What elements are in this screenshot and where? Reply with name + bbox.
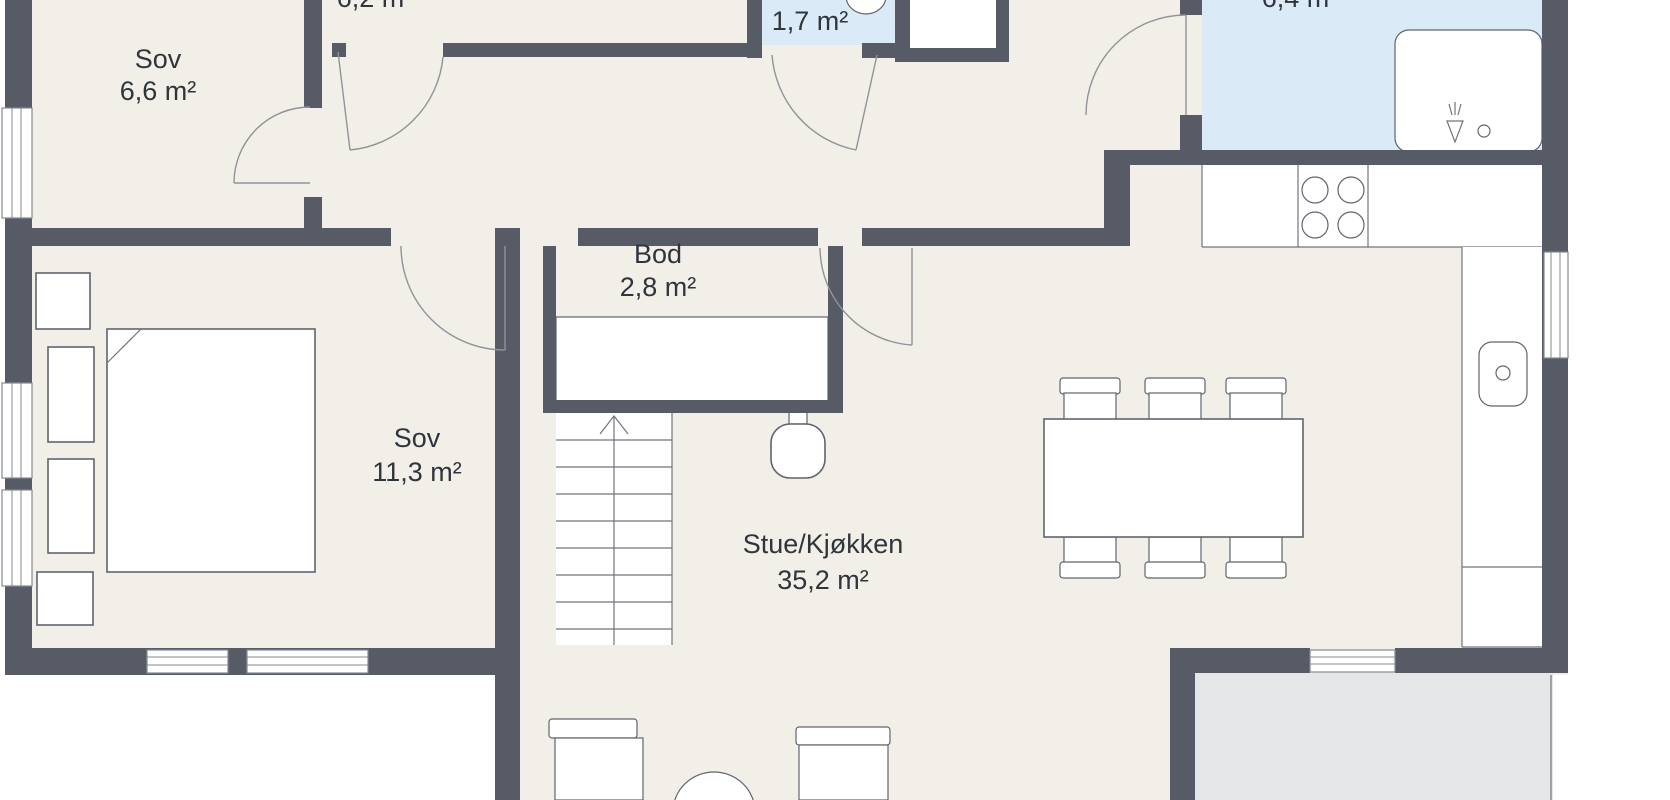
mattress: [107, 329, 315, 572]
armchair: [555, 738, 643, 800]
terrace-floor: [1195, 673, 1553, 800]
wall-main-horizontal: [5, 228, 391, 246]
bod-wall-left: [543, 246, 556, 402]
counter-right-band: [1462, 247, 1542, 647]
armchair: [549, 719, 637, 738]
window: [2, 383, 32, 478]
armchair: [796, 727, 890, 745]
dining-table: [1044, 419, 1303, 537]
counter-top-band: [1202, 165, 1542, 247]
window: [247, 650, 368, 673]
hall-closet: [910, 0, 996, 48]
room-label-bod: Bod: [634, 239, 682, 269]
armchair: [799, 745, 888, 800]
shower-cabin: [1395, 30, 1542, 152]
room-area-top-mid: 6,2 m²: [337, 0, 414, 13]
room-label-stue: Stue/Kjøkken: [743, 529, 904, 559]
bod-wall-right: [828, 246, 843, 402]
window: [2, 108, 32, 218]
room-area-sov-top: 6,6 m²: [120, 76, 197, 106]
room-area-bad: 6,4 m²: [1262, 0, 1339, 13]
dining-set: [1044, 378, 1303, 578]
sink-icon: [1479, 342, 1527, 406]
room-area-bod: 2,8 m²: [620, 272, 697, 302]
room-label-sov-left: Sov: [394, 423, 441, 453]
floor-plan: Sov 6,6 m² 6,2 m² 1,7 m² 6,4 m² Bod 2,8 …: [0, 0, 1670, 800]
pillow: [48, 459, 94, 553]
wall-stairwell: [495, 228, 520, 800]
stair-landing: [556, 317, 828, 401]
room-label-sov-top: Sov: [135, 44, 182, 74]
pillow: [48, 347, 94, 442]
floor-plan-screenshot: Sov 6,6 m² 6,2 m² 1,7 m² 6,4 m² Bod 2,8 …: [0, 0, 1670, 800]
window: [2, 490, 32, 586]
terrace-door-window: [1310, 650, 1395, 672]
bod-wall-bottom: [543, 400, 843, 413]
room-area-stue: 35,2 m²: [777, 565, 869, 595]
window: [147, 650, 228, 673]
room-area-wc: 1,7 m²: [772, 6, 849, 36]
window: [1544, 252, 1568, 358]
room-area-sov-left: 11,3 m²: [372, 457, 462, 487]
